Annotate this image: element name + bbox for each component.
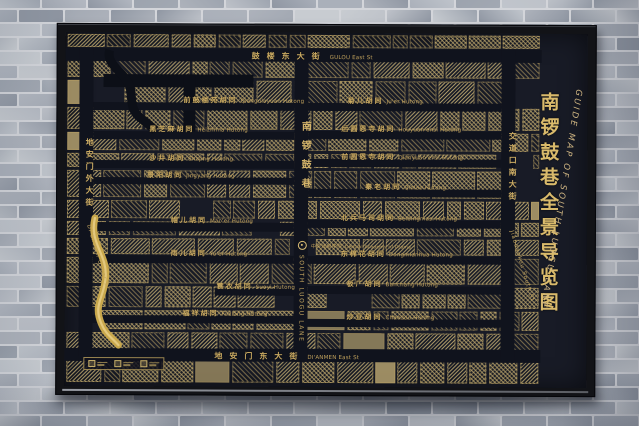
label-qianguloyuan-hutong: 前鼓楼苑胡同 Qianguloyuan Hutong bbox=[183, 95, 304, 106]
label-juer-hutong: 菊儿胡同 Ju'er Hutong bbox=[347, 96, 423, 106]
map-panel: 鼓楼东大街 GULOU East St 地安门东大街 DI'ANMEN East… bbox=[64, 32, 588, 388]
legend-icon bbox=[88, 360, 95, 367]
label-dianmen-east-st: 地安门东大街 DI'ANMEN East St bbox=[214, 351, 359, 363]
label-south-luogu-lane-en: SOUTH LUOGU LANE bbox=[297, 255, 304, 343]
label-dianmen-outer-cn: 地安门外大街 bbox=[85, 138, 94, 210]
label-chaodou-hutong: 炒豆胡同 Chaodou Hutong bbox=[347, 312, 435, 322]
label-houyuanensi-hutong: 后圆恩寺胡同 Houyuan'ensi Hutong bbox=[341, 124, 461, 135]
legend-icon bbox=[114, 360, 121, 367]
label-gulou-en: GULOU East St bbox=[330, 55, 373, 61]
label-heizhima-hutong: 黑芝麻胡同 Heizhima Hutong bbox=[149, 124, 248, 134]
label-qianyuanensi-hutong: 前圆恩寺胡同 Qianyuan'ensi Hutong bbox=[341, 152, 463, 163]
label-qinlao-hutong: 秦老胡同 Qinlao Hutong bbox=[365, 182, 446, 192]
label-gulou-east-st: 鼓楼东大街 GULOU East St bbox=[252, 51, 373, 63]
label-jiaodaokou-cn: 交道口南大街 bbox=[508, 132, 517, 204]
label-jingyang-hutong: 景阳胡同 Jingyang Hutong bbox=[147, 170, 235, 180]
legend-item bbox=[140, 360, 159, 367]
legend-item bbox=[114, 360, 133, 367]
label-dianmen-outer-st: 地安门外大街 bbox=[80, 138, 99, 210]
label-gulou-cn: 鼓楼东大街 bbox=[252, 51, 327, 62]
street-jiaodaokou-south bbox=[500, 50, 515, 363]
legend-box bbox=[83, 357, 164, 370]
label-yuer-hutong: 雨儿胡同 Yu'er Hutong bbox=[171, 248, 248, 258]
legend-item bbox=[88, 360, 107, 367]
label-beibingmasi-hutong: 北兵马司胡同 Beibingmasi Hutong bbox=[341, 213, 457, 224]
label-shajing-hutong: 沙井胡同 Shajing Hutong bbox=[149, 153, 233, 163]
you-are-here-marker-icon bbox=[298, 241, 307, 250]
label-dianmen-east-cn: 地安门东大街 bbox=[214, 351, 304, 362]
label-fuxiang-hutong: 福祥胡同 Fuxiang Hutong bbox=[183, 308, 268, 318]
label-dongmianhua-hutong: 东棉花胡同 Dongmianhua Hutong bbox=[341, 249, 453, 259]
label-maoer-hutong: 帽儿胡同 Mao'er Hutong bbox=[171, 215, 253, 225]
legend-icon bbox=[140, 360, 147, 367]
label-banchang-hutong: 板厂胡同 Banchang Hutong bbox=[347, 279, 438, 289]
label-suoyi-hutong: 蓑衣胡同 Suoyi Hutong bbox=[217, 282, 295, 292]
label-central-academy-of-drama: 中央戏剧学院 Central Academy of Drama bbox=[311, 243, 411, 250]
map-area: 鼓楼东大街 GULOU East St 地安门东大街 DI'ANMEN East… bbox=[64, 32, 542, 390]
photo-of-guide-map-sign: 鼓楼东大街 GULOU East St 地安门东大街 DI'ANMEN East… bbox=[0, 0, 639, 426]
building-blocks-texture bbox=[66, 32, 542, 34]
title-column: 南锣鼓巷全景导览图 GUIDE MAP OF SOUTH LUOGU LANE bbox=[540, 34, 587, 390]
canal-dark-area bbox=[104, 74, 254, 88]
label-jiaodaokou-south-st: 交道口南大街 bbox=[503, 132, 522, 204]
label-dianmen-east-en: DI'ANMEN East St bbox=[307, 355, 359, 361]
label-south-luogu-lane-cn: 南锣鼓巷 bbox=[295, 121, 314, 197]
guide-map-sign: 鼓楼东大街 GULOU East St 地安门东大街 DI'ANMEN East… bbox=[55, 23, 597, 397]
